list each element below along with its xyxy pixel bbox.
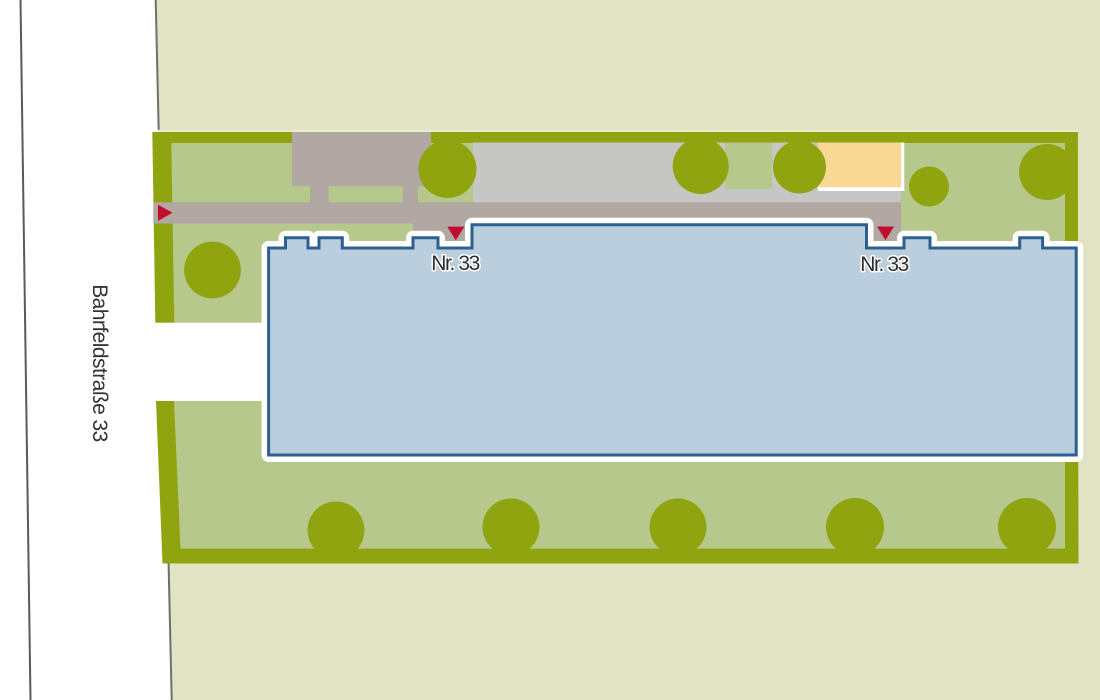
svg-text:Nr. 33: Nr. 33 (860, 253, 908, 276)
svg-text:Nr. 33: Nr. 33 (431, 252, 479, 275)
svg-text:Bahrfeldstraße 33: Bahrfeldstraße 33 (88, 284, 111, 442)
